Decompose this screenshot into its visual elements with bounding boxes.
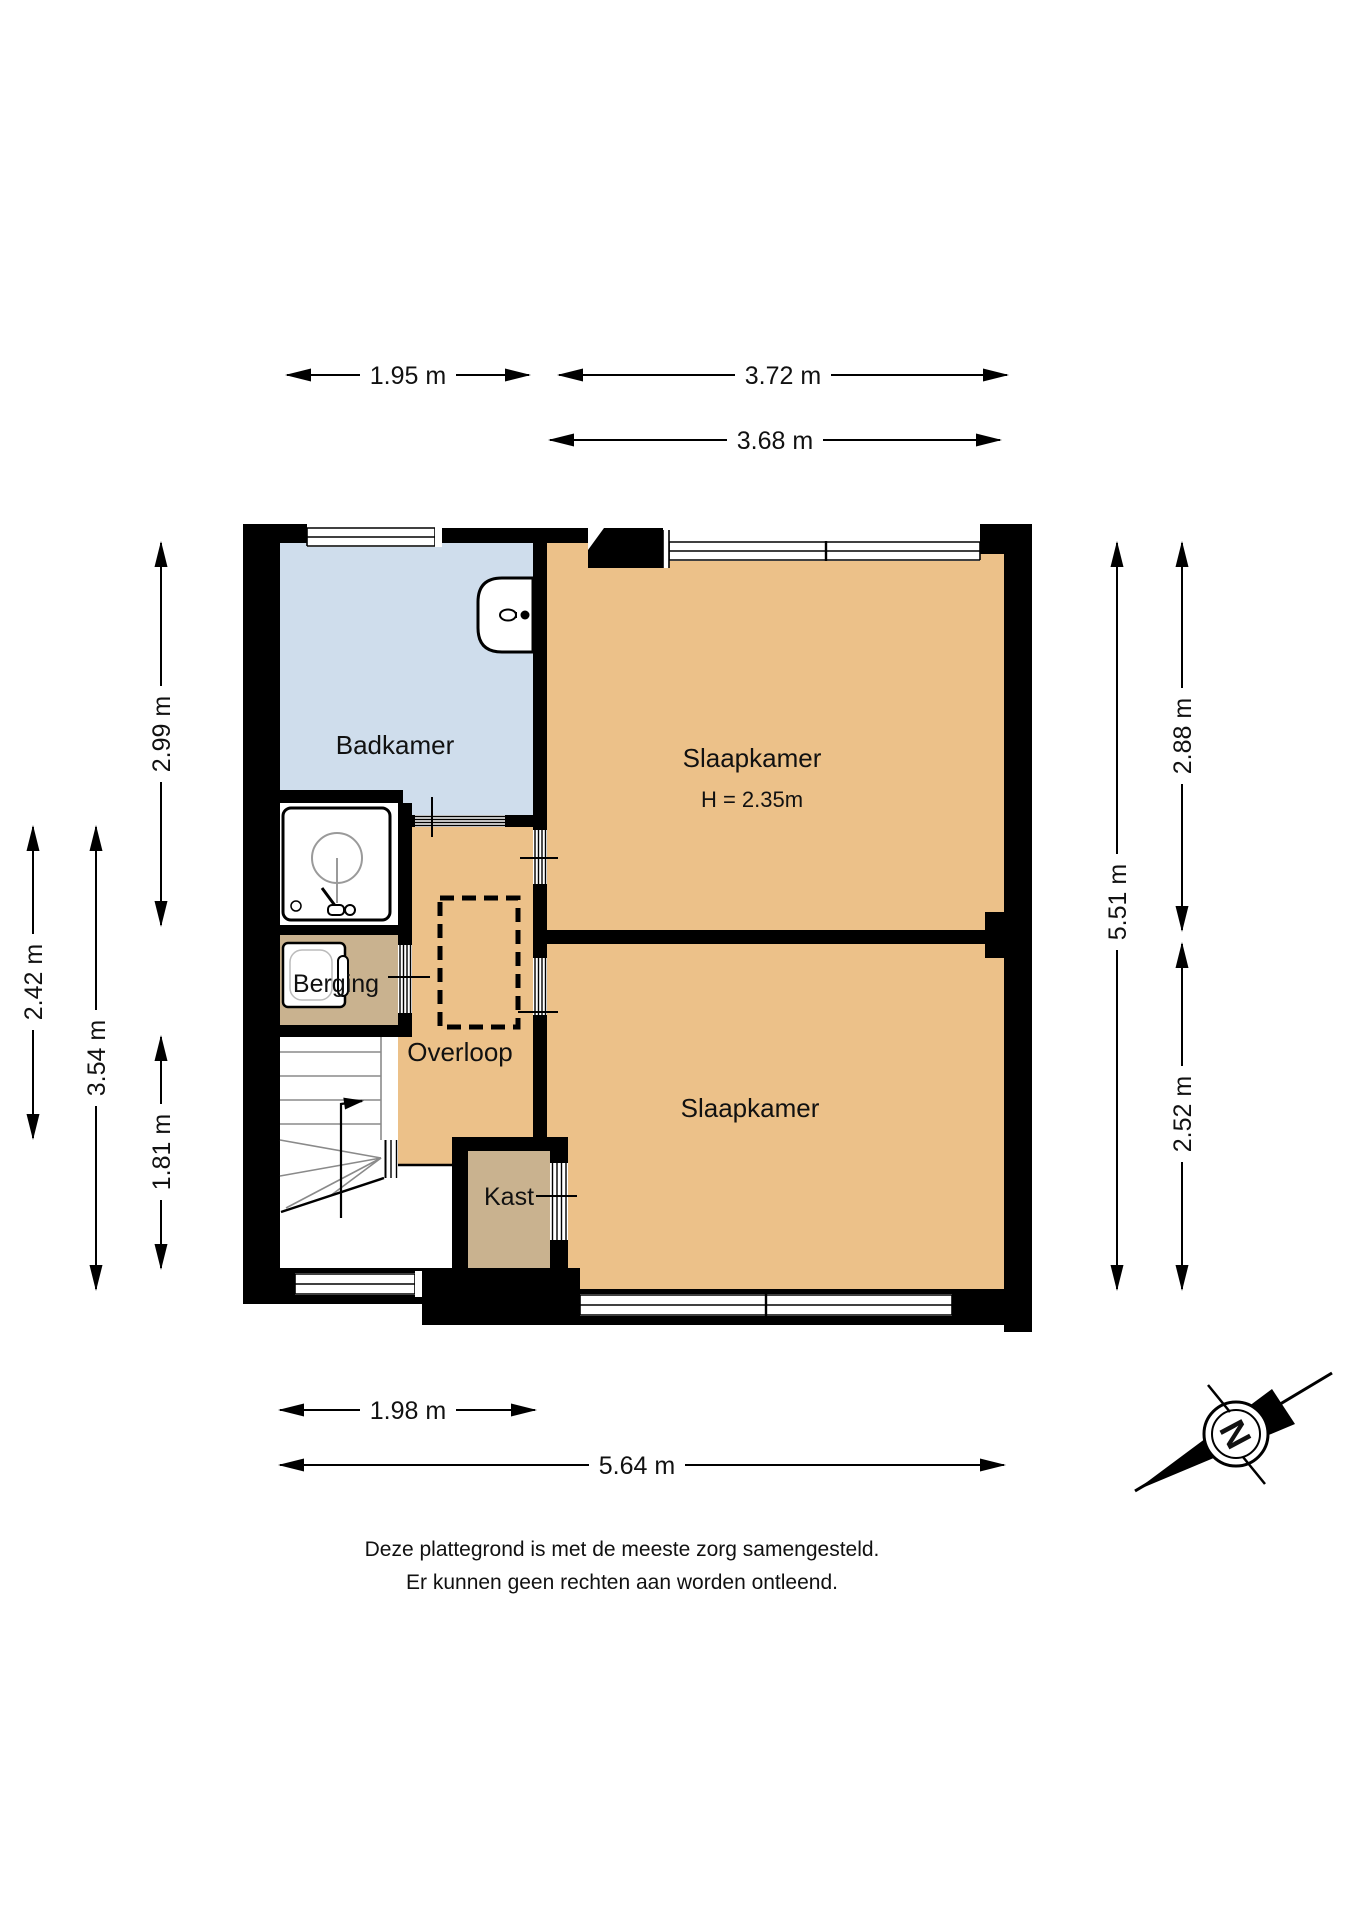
door-badkamer <box>415 815 505 827</box>
window-hal <box>295 1273 415 1295</box>
room-overloop <box>398 827 533 1165</box>
toilet-icon <box>478 578 533 652</box>
label-slaapkamer-onder: Slaapkamer <box>681 1093 820 1123</box>
window-slaapkamer-onder <box>580 1294 952 1316</box>
dim-top-slaapkamer: 3.72 m <box>745 362 821 390</box>
dim-rechts-boven: 2.88 m <box>1169 698 1197 774</box>
dim-links-buiten: 2.42 m <box>20 944 48 1020</box>
label-slaapkamer-boven: Slaapkamer <box>683 743 822 773</box>
stair-threshold <box>384 1140 398 1178</box>
compass: N <box>1135 1373 1332 1491</box>
dim-links-trap: 1.81 m <box>148 1114 176 1190</box>
dim-rechts-totaal: 5.51 m <box>1104 864 1132 940</box>
door-kast <box>550 1163 568 1240</box>
jamb-block <box>663 530 669 568</box>
floorplan-page: 1.95 m 3.72 m 3.68 m 2.42 m 3.54 m 2.99 … <box>0 0 1358 1920</box>
label-badkamer: Badkamer <box>336 730 455 760</box>
label-berging: Berging <box>293 970 379 998</box>
window-badkamer <box>307 527 435 547</box>
jamb <box>435 527 442 547</box>
dim-links-midden: 3.54 m <box>83 1020 111 1096</box>
dim-onder-totaal: 5.64 m <box>599 1452 675 1480</box>
door-slaapkamer-onder <box>533 958 547 1015</box>
floorplan-drawing: 1.95 m 3.72 m 3.68 m 2.42 m 3.54 m 2.99 … <box>0 0 1358 1920</box>
stair-direction-arrow <box>341 1101 362 1218</box>
window-slaapkamer-boven <box>669 541 980 561</box>
disclaimer-line-2: Er kunnen geen rechten aan worden ontlee… <box>406 1571 838 1594</box>
dim-onder-hal: 1.98 m <box>370 1397 446 1425</box>
label-kast: Kast <box>484 1183 534 1211</box>
shower-icon <box>283 808 390 920</box>
dim-top-badkamer: 1.95 m <box>370 362 446 390</box>
dim-links-badkamer: 2.99 m <box>148 696 176 772</box>
dim-rechts-onder: 2.52 m <box>1169 1076 1197 1152</box>
disclaimer: Deze plattegrond is met de meeste zorg s… <box>365 1538 880 1594</box>
door-berging <box>398 945 412 1013</box>
disclaimer-line-1: Deze plattegrond is met de meeste zorg s… <box>365 1538 880 1561</box>
dim-top-slaapkamer-binnen: 3.68 m <box>737 427 813 455</box>
room-slaapkamer-boven <box>547 543 1004 930</box>
jamb <box>415 1271 422 1297</box>
label-overloop: Overloop <box>407 1037 513 1067</box>
label-slaapkamer-boven-hoogte: H = 2.35m <box>701 787 803 812</box>
